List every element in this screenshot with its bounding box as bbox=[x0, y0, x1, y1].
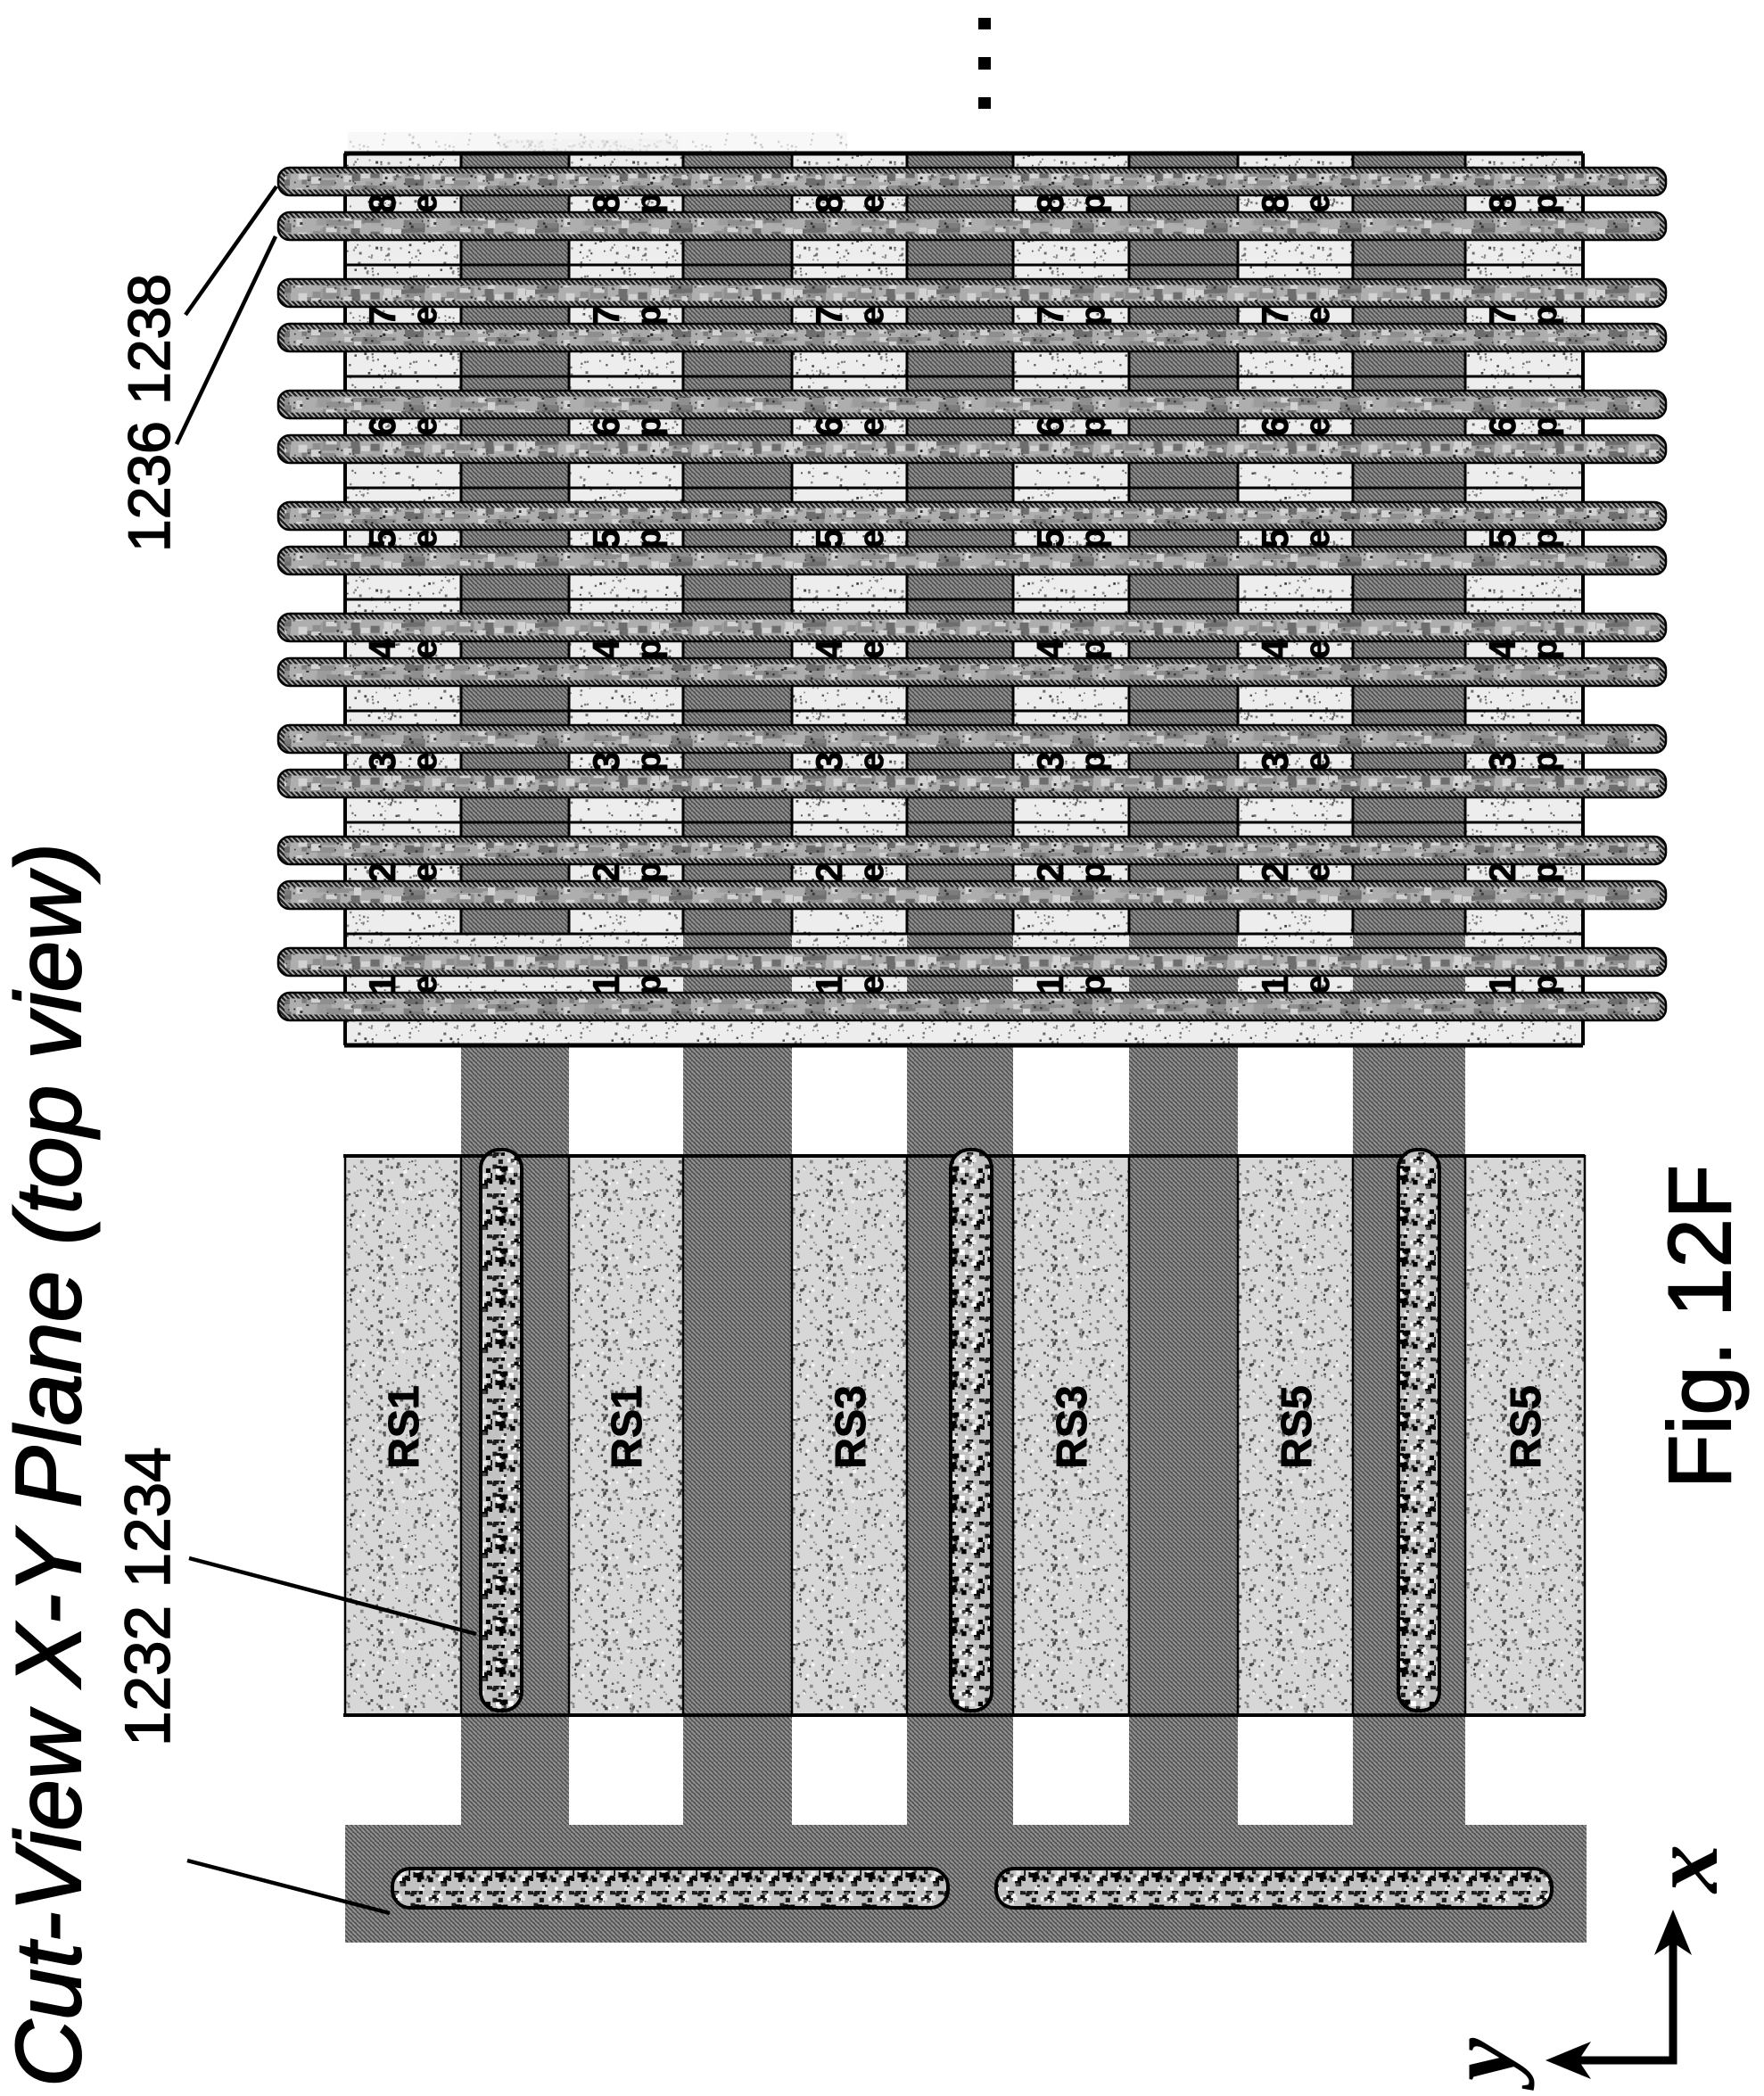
svg-text:p: p bbox=[1527, 193, 1564, 213]
svg-text:p: p bbox=[1527, 974, 1564, 994]
svg-text:2: 2 bbox=[1029, 862, 1071, 882]
svg-text:4: 4 bbox=[1029, 639, 1071, 660]
svg-text:p: p bbox=[631, 862, 668, 882]
svg-text:p: p bbox=[1527, 639, 1564, 659]
svg-text:p: p bbox=[1075, 528, 1112, 549]
svg-text:8: 8 bbox=[1481, 193, 1523, 213]
svg-text:p: p bbox=[631, 528, 668, 549]
svg-text:p: p bbox=[1075, 974, 1112, 994]
svg-text:7: 7 bbox=[585, 305, 627, 326]
svg-text:3: 3 bbox=[1254, 751, 1296, 772]
svg-text:3: 3 bbox=[1481, 751, 1523, 772]
svg-text:6: 6 bbox=[1254, 416, 1296, 436]
svg-text:5: 5 bbox=[1481, 528, 1523, 549]
svg-text:8: 8 bbox=[1254, 193, 1296, 213]
svg-text:6: 6 bbox=[361, 416, 403, 436]
svg-text:e: e bbox=[853, 752, 891, 771]
svg-text:8: 8 bbox=[1029, 193, 1071, 213]
svg-text:1: 1 bbox=[1254, 974, 1296, 994]
svg-text:3: 3 bbox=[1029, 751, 1071, 772]
svg-text:p: p bbox=[1527, 528, 1564, 549]
svg-text:p: p bbox=[1527, 862, 1564, 882]
svg-text:RS1: RS1 bbox=[381, 1385, 428, 1468]
svg-text:1: 1 bbox=[808, 974, 850, 994]
svg-text:2: 2 bbox=[585, 862, 627, 882]
svg-text:5: 5 bbox=[585, 528, 627, 549]
svg-text:e: e bbox=[407, 529, 444, 548]
svg-text:p: p bbox=[631, 416, 668, 436]
svg-text:RS3: RS3 bbox=[828, 1385, 875, 1468]
svg-text:7: 7 bbox=[1481, 305, 1523, 326]
svg-text:e: e bbox=[853, 975, 891, 994]
svg-text:4: 4 bbox=[1481, 639, 1523, 660]
svg-text:e: e bbox=[853, 417, 891, 435]
svg-text:e: e bbox=[853, 194, 891, 212]
svg-text:8: 8 bbox=[361, 193, 403, 213]
svg-text:RS1: RS1 bbox=[604, 1385, 651, 1468]
svg-text:1: 1 bbox=[1029, 974, 1071, 994]
svg-text:e: e bbox=[407, 306, 444, 325]
svg-text:e: e bbox=[1299, 194, 1337, 212]
svg-text:p: p bbox=[631, 751, 668, 772]
svg-text:e: e bbox=[853, 862, 891, 881]
svg-text:8: 8 bbox=[808, 193, 850, 213]
svg-text:p: p bbox=[1075, 193, 1112, 213]
svg-text:5: 5 bbox=[1254, 528, 1296, 549]
svg-text:2: 2 bbox=[1481, 862, 1523, 882]
svg-text:6: 6 bbox=[585, 416, 627, 436]
svg-text:p: p bbox=[1075, 305, 1112, 326]
svg-text:e: e bbox=[1299, 306, 1337, 325]
svg-text:p: p bbox=[631, 974, 668, 994]
svg-text:p: p bbox=[1075, 751, 1112, 772]
svg-text:e: e bbox=[853, 529, 891, 548]
svg-text:e: e bbox=[853, 306, 891, 325]
svg-text:e: e bbox=[1299, 417, 1337, 435]
svg-text:Cut-View X-Y Plane (top view): Cut-View X-Y Plane (top view) bbox=[0, 843, 101, 2087]
svg-text:4: 4 bbox=[808, 639, 850, 660]
svg-text:RS3: RS3 bbox=[1049, 1385, 1096, 1468]
svg-text:4: 4 bbox=[585, 639, 627, 660]
svg-text:e: e bbox=[1299, 975, 1337, 994]
svg-text:e: e bbox=[1299, 752, 1337, 771]
svg-text:e: e bbox=[407, 640, 444, 658]
svg-text:y: y bbox=[1429, 2037, 1535, 2091]
svg-text:4: 4 bbox=[361, 639, 403, 660]
svg-text:7: 7 bbox=[361, 305, 403, 326]
svg-text:6: 6 bbox=[808, 416, 850, 436]
svg-text:2: 2 bbox=[1254, 862, 1296, 882]
svg-text:Fig. 12F: Fig. 12F bbox=[1650, 1165, 1749, 1489]
svg-text:p: p bbox=[1075, 862, 1112, 882]
svg-text:5: 5 bbox=[361, 528, 403, 549]
svg-text:e: e bbox=[1299, 862, 1337, 881]
svg-text:p: p bbox=[1075, 639, 1112, 659]
svg-text:3: 3 bbox=[808, 751, 850, 772]
svg-text:1236 1238: 1236 1238 bbox=[116, 274, 182, 552]
svg-text:7: 7 bbox=[1029, 305, 1071, 326]
svg-text:RS5: RS5 bbox=[1274, 1385, 1321, 1468]
svg-text:p: p bbox=[1527, 305, 1564, 326]
svg-text:e: e bbox=[1299, 529, 1337, 548]
svg-text:e: e bbox=[853, 640, 891, 658]
svg-text:1232 1234: 1232 1234 bbox=[113, 1447, 184, 1746]
svg-text:e: e bbox=[407, 752, 444, 771]
svg-text:6: 6 bbox=[1481, 416, 1523, 436]
svg-text:3: 3 bbox=[585, 751, 627, 772]
svg-text:e: e bbox=[407, 194, 444, 212]
svg-text:7: 7 bbox=[1254, 305, 1296, 326]
svg-text:5: 5 bbox=[1029, 528, 1071, 549]
svg-text:p: p bbox=[631, 639, 668, 659]
svg-text:e: e bbox=[1299, 640, 1337, 658]
svg-text:2: 2 bbox=[808, 862, 850, 882]
svg-text:x: x bbox=[1632, 1844, 1738, 1894]
svg-text:2: 2 bbox=[361, 862, 403, 882]
svg-text:8: 8 bbox=[585, 193, 627, 213]
svg-text:p: p bbox=[1527, 416, 1564, 436]
svg-text:RS5: RS5 bbox=[1503, 1385, 1550, 1468]
svg-text:p: p bbox=[631, 305, 668, 326]
svg-text:p: p bbox=[1075, 416, 1112, 436]
svg-text:e: e bbox=[407, 862, 444, 881]
svg-text:4: 4 bbox=[1254, 639, 1296, 660]
svg-text:e: e bbox=[407, 975, 444, 994]
svg-text:p: p bbox=[631, 193, 668, 213]
svg-text:5: 5 bbox=[808, 528, 850, 549]
svg-text:p: p bbox=[1527, 751, 1564, 772]
svg-text:1: 1 bbox=[585, 974, 627, 994]
svg-text:7: 7 bbox=[808, 305, 850, 326]
svg-text:1: 1 bbox=[1481, 974, 1523, 994]
svg-text:e: e bbox=[407, 417, 444, 435]
svg-text:3: 3 bbox=[361, 751, 403, 772]
svg-text:1: 1 bbox=[361, 974, 403, 994]
svg-text:6: 6 bbox=[1029, 416, 1071, 436]
